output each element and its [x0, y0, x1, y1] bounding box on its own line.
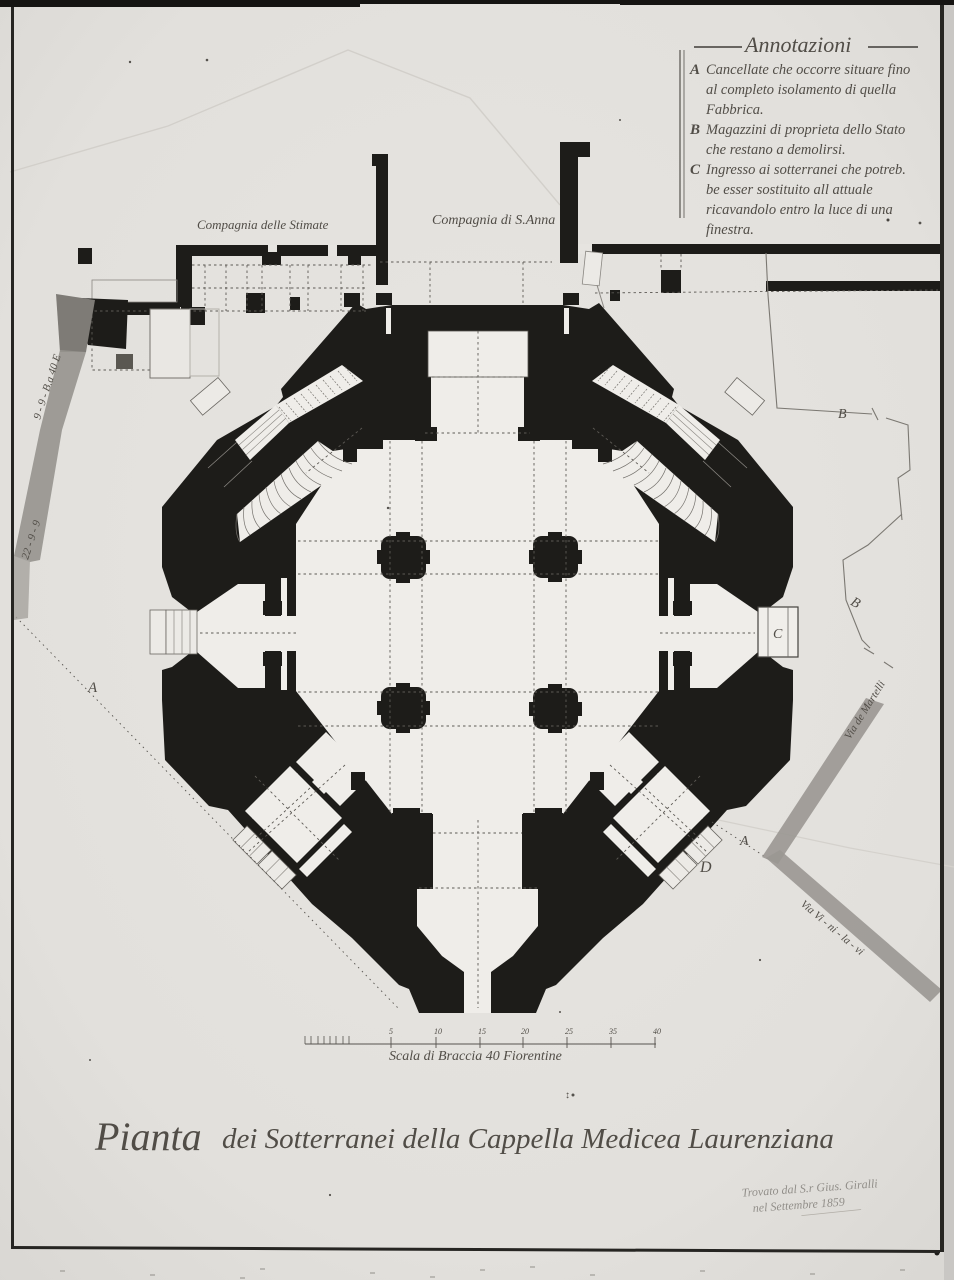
svg-text:al completo isolamento di quel: al completo isolamento di quella — [706, 82, 896, 98]
svg-text:A: A — [689, 62, 700, 78]
svg-text:10: 10 — [434, 1027, 442, 1036]
svg-text:dei Sotterranei della Cappella: dei Sotterranei della Cappella Medicea L… — [222, 1123, 834, 1155]
svg-text:Cancellate che occorre situare: Cancellate che occorre situare fino — [706, 62, 910, 78]
svg-text:20: 20 — [521, 1027, 529, 1036]
svg-text:B: B — [689, 122, 700, 138]
svg-text:↕: ↕ — [565, 1090, 570, 1101]
svg-text:be esser sostituito all attual: be esser sostituito all attuale — [706, 182, 873, 198]
svg-text:che restano a demolirsi.: che restano a demolirsi. — [706, 142, 846, 158]
svg-text:B: B — [838, 407, 847, 422]
svg-text:A: A — [739, 834, 749, 849]
svg-text:Ingresso ai sotterranei che po: Ingresso ai sotterranei che potreb. — [705, 162, 906, 178]
svg-text:ricavandolo entro la luce di u: ricavandolo entro la luce di una — [706, 202, 893, 218]
svg-text:D: D — [699, 859, 712, 876]
svg-text:40: 40 — [653, 1027, 661, 1036]
svg-text:C: C — [773, 627, 783, 642]
svg-text:35: 35 — [608, 1027, 617, 1036]
svg-text:Compagnia di S.Anna: Compagnia di S.Anna — [432, 213, 555, 228]
svg-text:25: 25 — [565, 1027, 573, 1036]
svg-text:Annotazioni: Annotazioni — [743, 32, 851, 57]
svg-text:finestra.: finestra. — [706, 222, 754, 238]
svg-text:A: A — [87, 680, 98, 696]
svg-text:Magazzini di proprieta dello S: Magazzini di proprieta dello Stato — [705, 122, 905, 138]
svg-text:C: C — [690, 162, 701, 178]
svg-text:Pianta: Pianta — [94, 1114, 202, 1159]
svg-text:15: 15 — [478, 1027, 486, 1036]
svg-text:5: 5 — [389, 1027, 393, 1036]
svg-text:Fabbrica.: Fabbrica. — [705, 102, 764, 118]
svg-text:Scala di Braccia 40 Fiorentine: Scala di Braccia 40 Fiorentine — [389, 1049, 562, 1064]
svg-text:Compagnia delle Stimate: Compagnia delle Stimate — [197, 217, 329, 232]
